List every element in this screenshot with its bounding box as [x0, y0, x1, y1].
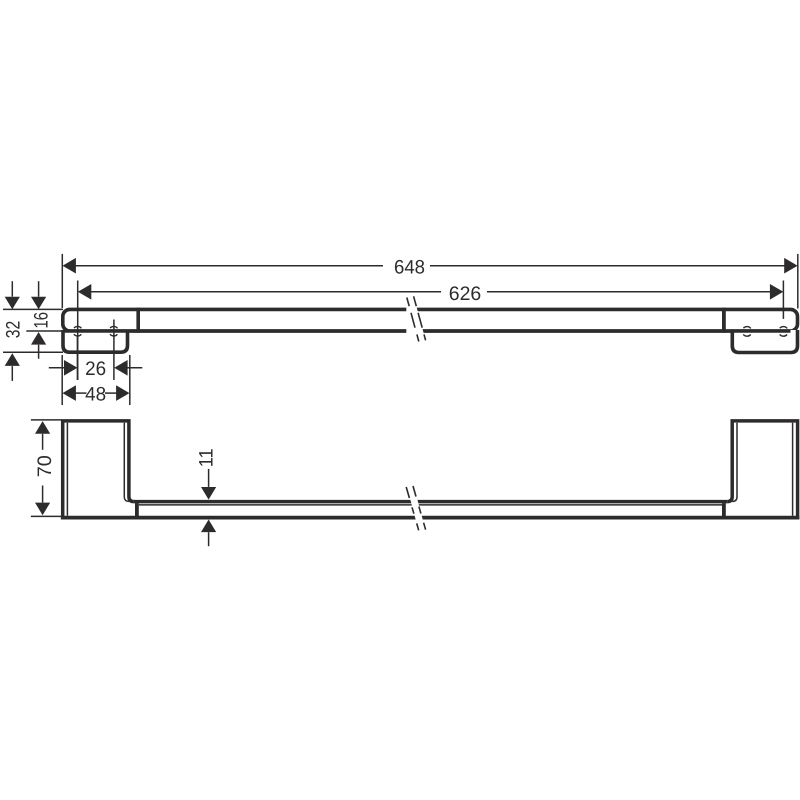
svg-text:11: 11	[195, 448, 217, 467]
svg-text:26: 26	[85, 358, 106, 380]
svg-text:32: 32	[3, 321, 25, 339]
svg-text:648: 648	[394, 257, 425, 279]
svg-text:70: 70	[34, 455, 56, 477]
svg-text:48: 48	[85, 383, 106, 405]
svg-text:16: 16	[31, 312, 53, 329]
svg-text:626: 626	[449, 283, 482, 305]
